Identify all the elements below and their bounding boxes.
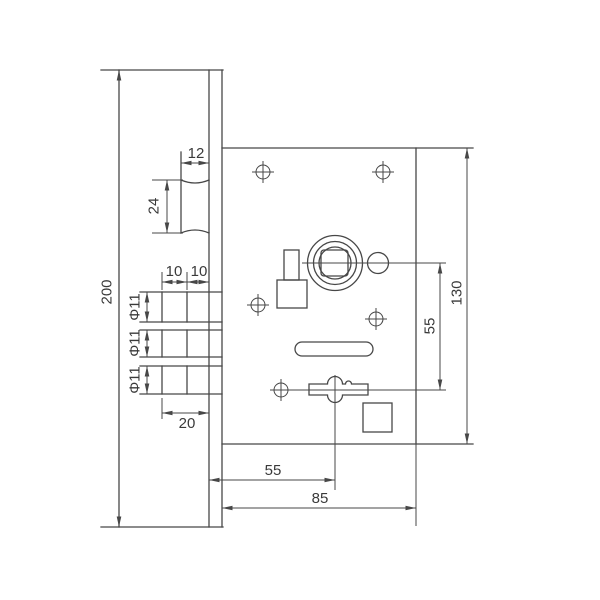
dim-label-backset: 55	[265, 462, 282, 479]
dim-label-latch-height: 24	[146, 198, 163, 215]
dim-hub-to-cylinder: 55	[422, 263, 441, 390]
follower-square	[363, 403, 392, 432]
dim-label-bolt-dia-2: Φ11	[127, 329, 144, 357]
centerlines	[291, 263, 446, 490]
dim-backset: 55	[209, 462, 335, 480]
screw-mark-icon	[270, 379, 292, 401]
dim-label-bolt-dia-1: Φ11	[127, 293, 144, 321]
deadbolt-row-1	[140, 292, 222, 322]
dim-label-body-width: 85	[312, 490, 329, 507]
dim-label-hub-to-cylinder: 55	[422, 318, 439, 335]
screw-marks	[247, 161, 394, 401]
latch-top-curve	[181, 180, 209, 183]
dim-label-plate-height: 200	[99, 279, 116, 304]
screw-mark-icon	[365, 308, 387, 330]
dim-label-bolt-step-1: 10	[166, 263, 183, 280]
lever-part	[277, 250, 307, 308]
dim-bolt-dia-1: Φ11	[127, 292, 148, 322]
dim-label-latch-width: 12	[188, 145, 205, 162]
dim-bolt-dia-3: Φ11	[127, 366, 148, 394]
screw-mark-icon	[247, 294, 269, 316]
lever-lower-block	[277, 280, 307, 308]
dim-label-body-height: 130	[449, 280, 466, 305]
latch-bottom-curve	[181, 230, 209, 233]
deadbolt-row-2	[140, 330, 222, 357]
dim-bolt-steps: 10 10	[162, 263, 209, 290]
dim-label-bolt-throw: 20	[179, 415, 196, 432]
dim-bolt-throw: 20	[162, 398, 209, 432]
lever-upper-block	[284, 250, 299, 280]
dim-label-bolt-dia-3: Φ11	[127, 366, 144, 394]
dim-latch-width: 12	[181, 145, 209, 163]
oval-slot	[295, 342, 373, 356]
lock-body	[222, 148, 473, 444]
latch-bolt	[181, 152, 209, 233]
dim-body-width: 85	[222, 444, 416, 526]
screw-mark-icon	[252, 161, 274, 183]
dim-body-height: 130	[449, 148, 468, 444]
lock-dimension-drawing: 200 12 24 Φ11	[0, 0, 600, 600]
screw-mark-icon	[372, 161, 394, 183]
dim-bolt-dia-2: Φ11	[127, 329, 148, 357]
deadbolt-row-3	[140, 366, 222, 394]
dim-plate-height: 200	[99, 70, 120, 527]
dim-label-bolt-step-2: 10	[191, 263, 208, 280]
dim-latch-height: 24	[146, 180, 184, 233]
